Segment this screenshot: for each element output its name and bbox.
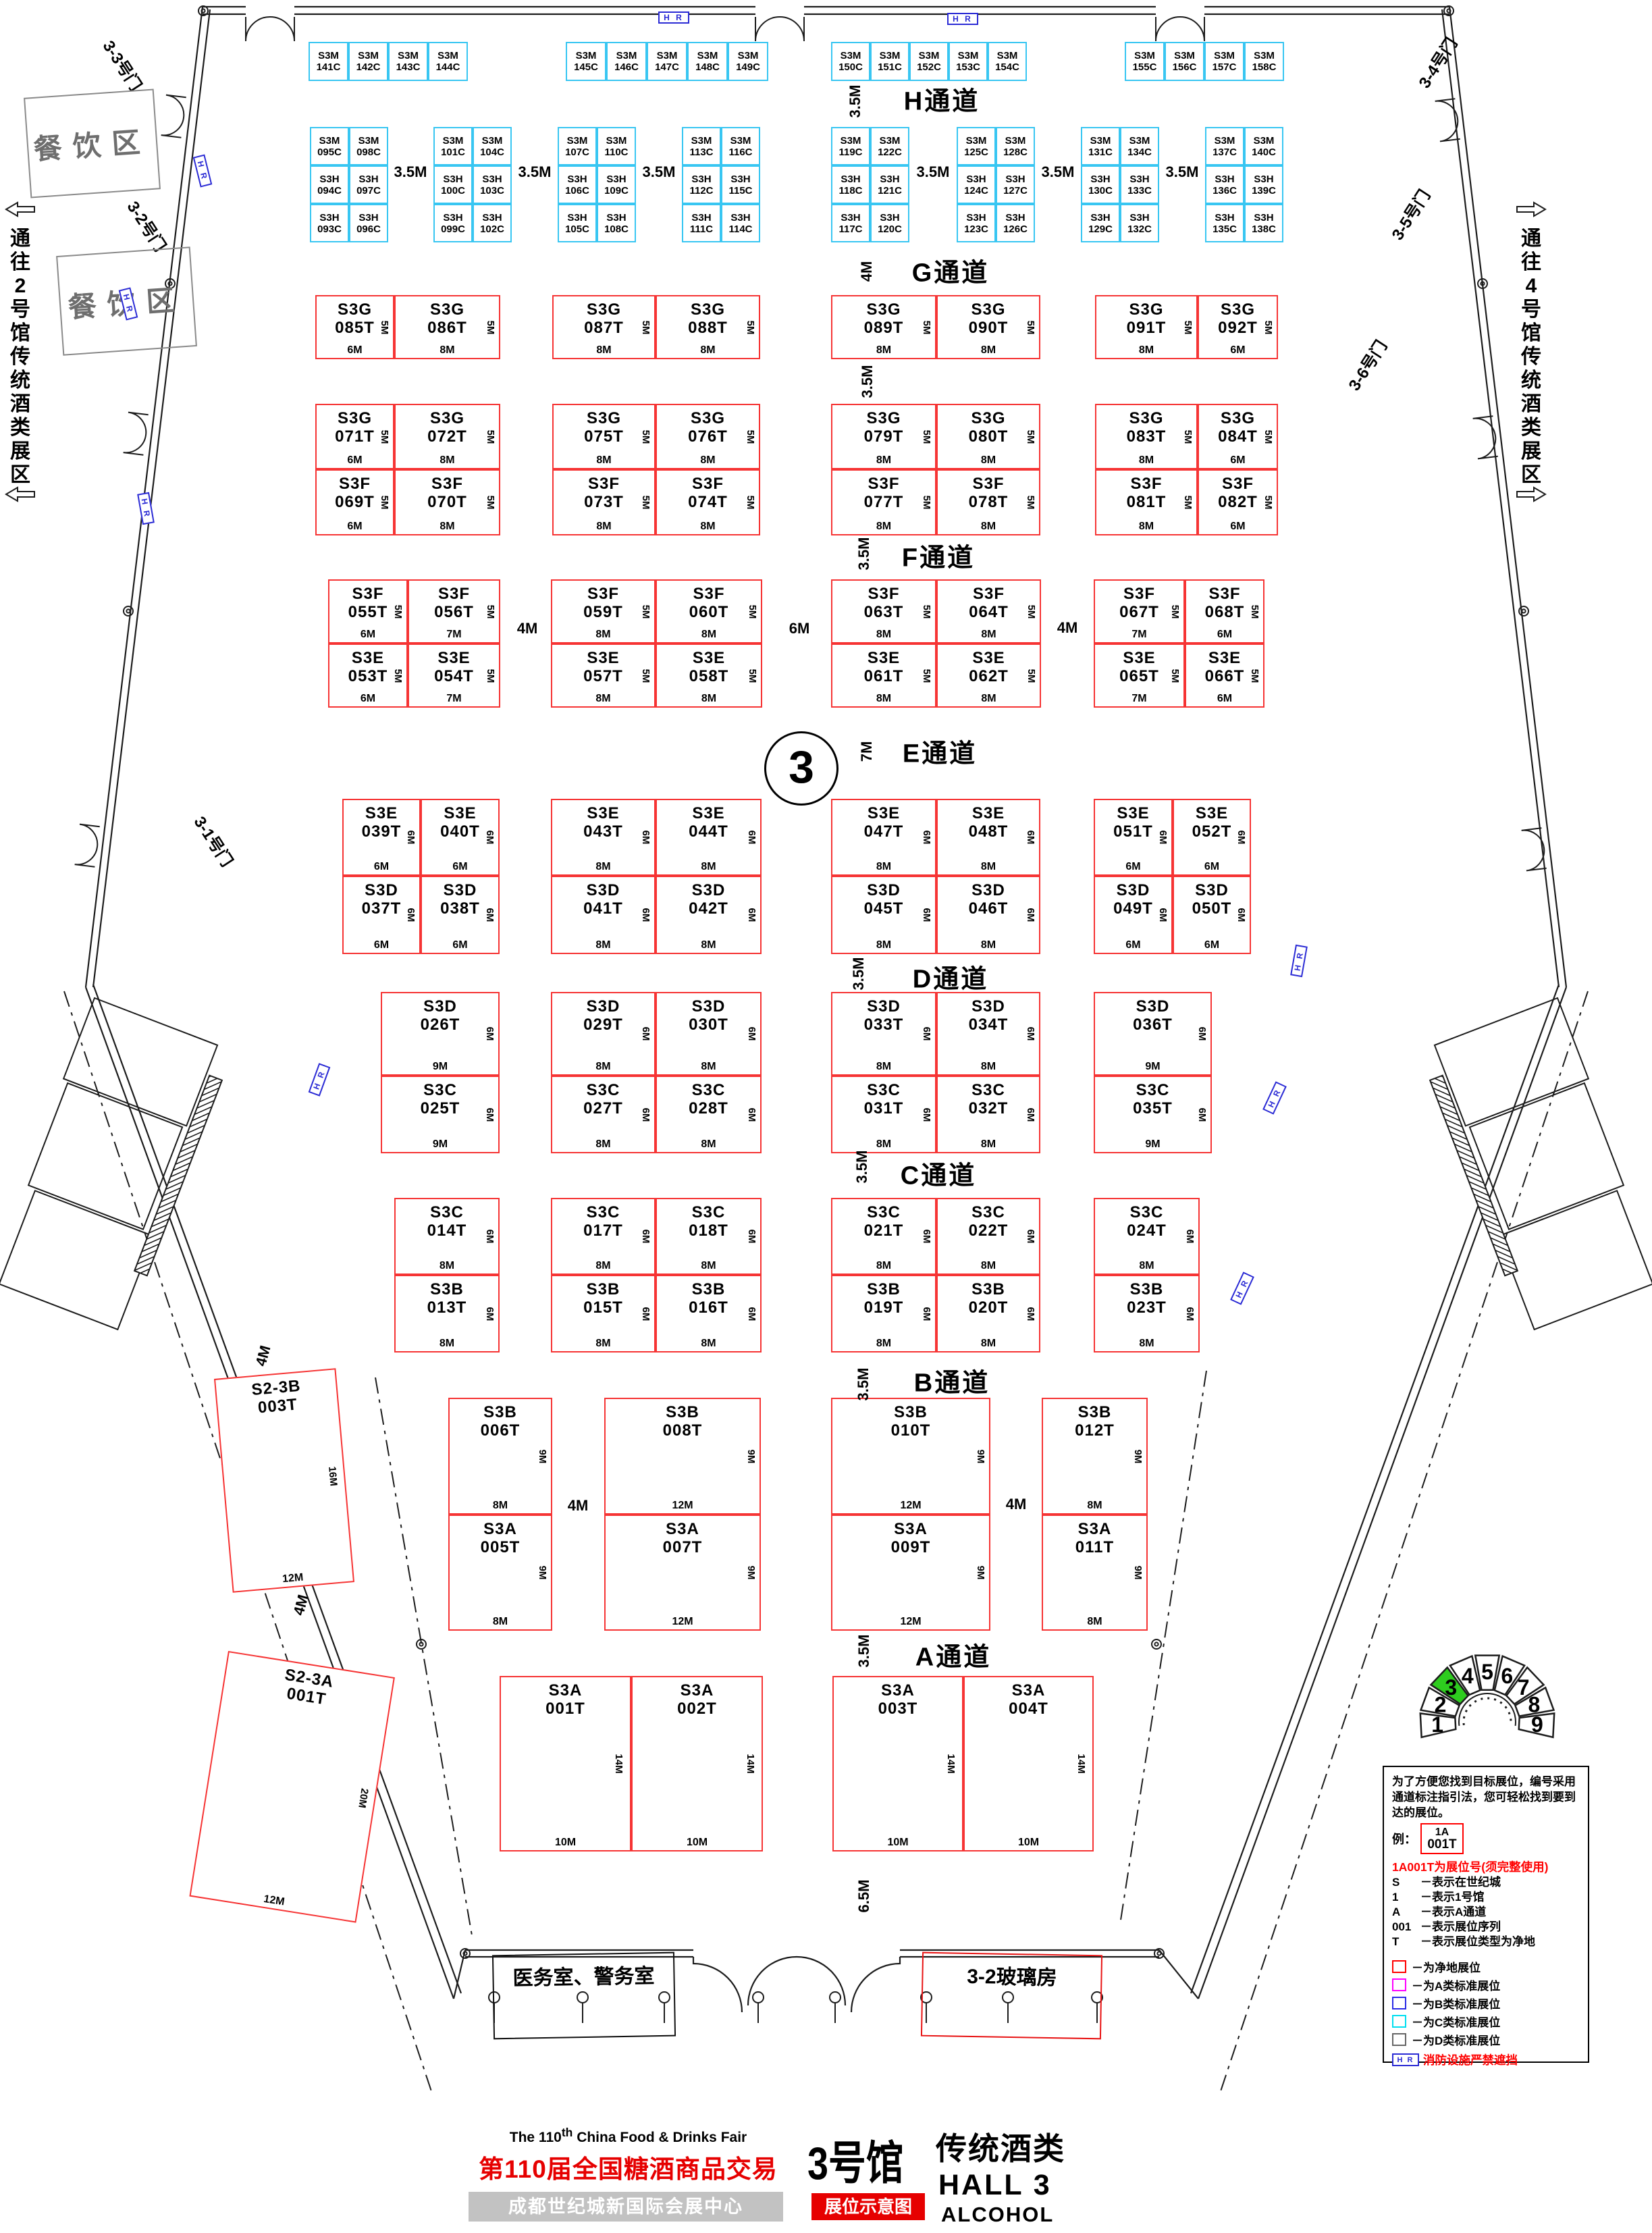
dimension-label: 4M	[568, 1497, 589, 1515]
booth-S3H-132C[interactable]: S3H132C	[1120, 204, 1159, 242]
booth-code: S3M131C	[1082, 135, 1119, 158]
booth-code: S3E043T	[552, 804, 654, 841]
booth-width-dim: 8M	[657, 939, 760, 951]
booth-depth-dim: 9M	[975, 1449, 986, 1463]
legend-def-row: 001－表示展位序列	[1392, 1920, 1580, 1935]
booth-code: S3M125C	[958, 135, 994, 158]
booth-S3F-059T[interactable]: S3F059T8M5M	[551, 579, 656, 643]
booth-depth-dim: 5M	[1249, 668, 1260, 683]
legend-example-line2: 001T	[1422, 1839, 1462, 1851]
booth-width-dim: 8M	[832, 861, 935, 873]
booth-S3M-131C[interactable]: S3M131C	[1081, 127, 1120, 165]
booth-S3C-028T[interactable]: S3C028T8M6M	[656, 1076, 762, 1153]
booth-S3M-158C[interactable]: S3M158C	[1244, 42, 1284, 81]
booth-width-dim: 6M	[1186, 693, 1263, 705]
footer-map-label: 展位示意图	[811, 2193, 925, 2220]
booth-code: S3M128C	[997, 135, 1034, 158]
booth-S3H-103C[interactable]: S3H103C	[473, 165, 512, 204]
booth-width-dim: 8M	[554, 454, 654, 467]
dimension-label: 3.5M	[855, 537, 873, 571]
booth-code: S3C018T	[657, 1203, 760, 1240]
booth-S3M-101C[interactable]: S3M101C	[433, 127, 473, 165]
booth-width-dim: 8M	[938, 1260, 1039, 1272]
booth-S3A-001T[interactable]: S3A001T10M14M	[500, 1676, 631, 1851]
booth-S3A-009T[interactable]: S3A009T12M9M	[831, 1515, 990, 1631]
booth-depth-dim: 5M	[1025, 496, 1036, 510]
legend-headline: 1A001T为展位号(须完整使用)	[1392, 1858, 1580, 1875]
booth-depth-dim: 5M	[640, 668, 651, 683]
booth-width-dim: 8M	[396, 454, 499, 467]
booth-S3F-073T[interactable]: S3F073T8M5M	[552, 469, 656, 535]
booth-S3F-068T[interactable]: S3F068T6M5M	[1185, 579, 1264, 643]
booth-S3A-011T[interactable]: S3A011T8M9M	[1042, 1515, 1148, 1631]
booth-S3E-062T[interactable]: S3E062T8M5M	[936, 643, 1041, 708]
booth-S3M-107C[interactable]: S3M107C	[558, 127, 597, 165]
legend-swatch-row: －为B类标准展位	[1392, 1994, 1580, 2012]
booth-depth-dim: 9M	[975, 1566, 986, 1580]
footer-hall-type: 传统酒类	[936, 2124, 1065, 2169]
booth-S3G-076T[interactable]: S3G076T8M5M	[656, 404, 760, 469]
booth-width-dim: 8M	[657, 693, 761, 705]
booth-code: S3H118C	[832, 174, 869, 196]
booth-S3D-038T[interactable]: S3D038T6M6M	[421, 876, 500, 954]
booth-S3G-092T[interactable]: S3G092T6M5M	[1198, 295, 1278, 359]
booth-S3G-072T[interactable]: S3G072T8M5M	[394, 404, 500, 469]
booth-S3G-090T[interactable]: S3G090T8M5M	[936, 295, 1040, 359]
booth-S3C-021T[interactable]: S3C021T8M6M	[831, 1198, 936, 1275]
booth-depth-dim: 5M	[485, 668, 496, 683]
booth-S3G-086T[interactable]: S3G086T8M5M	[394, 295, 500, 359]
booth-code: S3M147C	[648, 50, 686, 73]
booth-S3G-079T[interactable]: S3G079T8M5M	[831, 404, 936, 469]
booth-S3G-080T[interactable]: S3G080T8M5M	[936, 404, 1040, 469]
booth-S3D-030T[interactable]: S3D030T8M6M	[656, 992, 762, 1076]
booth-depth-dim: 5M	[745, 429, 756, 444]
booth-depth-dim: 5M	[1249, 604, 1260, 619]
booth-S3H-097C[interactable]: S3H097C	[349, 165, 388, 204]
booth-code: S3M157C	[1206, 50, 1243, 73]
booth-S3M-125C[interactable]: S3M125C	[957, 127, 996, 165]
booth-S3A-007T[interactable]: S3A007T12M9M	[604, 1515, 761, 1631]
booth-S3G-083T[interactable]: S3G083T8M5M	[1095, 404, 1198, 469]
booth-S3G-091T[interactable]: S3G091T8M5M	[1095, 295, 1198, 359]
booth-code: S3M152C	[911, 50, 947, 73]
booth-S3M-151C[interactable]: S3M151C	[870, 42, 909, 81]
booth-width-dim: 8M	[938, 521, 1039, 533]
booth-code: S2-3B003T	[216, 1373, 338, 1420]
dimension-label: 3.5M	[853, 1151, 871, 1184]
booth-code: S3B023T	[1095, 1280, 1198, 1317]
booth-S3A-004T[interactable]: S3A004T10M14M	[963, 1676, 1094, 1851]
booth-S3H-096C[interactable]: S3H096C	[349, 204, 388, 242]
booth-S3H-115C[interactable]: S3H115C	[721, 165, 760, 204]
booth-S3H-135C[interactable]: S3H135C	[1205, 204, 1244, 242]
booth-width-dim: 9M	[382, 1061, 498, 1073]
booth-S3F-060T[interactable]: S3F060T8M5M	[656, 579, 762, 643]
booth-S3E-066T[interactable]: S3E066T6M5M	[1185, 643, 1264, 708]
booth-code: S3C014T	[396, 1203, 498, 1240]
booth-code: S3H094C	[311, 174, 348, 196]
booth-S3D-045T[interactable]: S3D045T8M6M	[831, 876, 936, 954]
booth-S3G-075T[interactable]: S3G075T8M5M	[552, 404, 656, 469]
booth-S3F-064T[interactable]: S3F064T8M5M	[936, 579, 1041, 643]
dimension-label: 3.5M	[1166, 163, 1199, 181]
booth-S3E-051T[interactable]: S3E051T6M6M	[1094, 799, 1173, 876]
booth-S3H-126C[interactable]: S3H126C	[996, 204, 1035, 242]
booth-S3H-111C[interactable]: S3H111C	[682, 204, 721, 242]
booth-code: S3F064T	[938, 585, 1040, 621]
booth-S2-3B-003T[interactable]: S2-3B003T12M16M	[214, 1368, 354, 1593]
booth-depth-dim: 5M	[1025, 429, 1036, 444]
booth-S3C-018T[interactable]: S3C018T8M6M	[656, 1198, 762, 1275]
booth-S3D-050T[interactable]: S3D050T6M6M	[1173, 876, 1251, 954]
booth-S3E-061T[interactable]: S3E061T8M5M	[831, 643, 936, 708]
booth-depth-dim: 9M	[537, 1449, 548, 1463]
booth-width-dim: 8M	[832, 629, 935, 641]
booth-code: S3H115C	[722, 174, 759, 196]
booth-S3H-118C[interactable]: S3H118C	[831, 165, 870, 204]
booth-S3B-023T[interactable]: S3B023T8M6M	[1094, 1275, 1200, 1352]
booth-depth-dim: 6M	[1025, 1230, 1036, 1244]
booth-code: S3M141C	[310, 50, 347, 73]
booth-S3E-053T[interactable]: S3E053T6M5M	[328, 643, 408, 708]
booth-depth-dim: 5M	[640, 604, 651, 619]
booth-S3B-006T[interactable]: S3B006T8M9M	[448, 1398, 552, 1515]
hr-icon: H R	[1392, 2053, 1419, 2066]
booth-S3G-071T[interactable]: S3G071T6M5M	[315, 404, 394, 469]
booth-S3H-124C[interactable]: S3H124C	[957, 165, 996, 204]
booth-S3M-147C[interactable]: S3M147C	[647, 42, 687, 81]
booth-width-dim: 7M	[409, 693, 499, 705]
booth-S3D-042T[interactable]: S3D042T8M6M	[656, 876, 762, 954]
booth-code: S3H108C	[598, 212, 635, 235]
booth-code: S3H135C	[1206, 212, 1243, 235]
booth-width-dim: 8M	[552, 1260, 654, 1272]
booth-depth-dim: 5M	[1025, 320, 1036, 334]
booth-S3H-108C[interactable]: S3H108C	[597, 204, 636, 242]
booth-code: S3A002T	[633, 1681, 762, 1718]
booth-depth-dim: 5M	[392, 604, 404, 619]
booth-S3M-137C[interactable]: S3M137C	[1205, 127, 1244, 165]
booth-S3E-054T[interactable]: S3E054T7M5M	[408, 643, 500, 708]
booth-S3M-122C[interactable]: S3M122C	[870, 127, 909, 165]
booth-depth-dim: 5M	[379, 320, 390, 334]
booth-S3E-052T[interactable]: S3E052T6M6M	[1173, 799, 1251, 876]
booth-S3F-081T[interactable]: S3F081T8M5M	[1095, 469, 1198, 535]
booth-S3B-008T[interactable]: S3B008T12M9M	[604, 1398, 761, 1515]
booth-width-dim: 8M	[552, 1338, 654, 1350]
booth-code: S3H114C	[722, 212, 759, 235]
legend-swatch-row: －为C类标准展位	[1392, 2012, 1580, 2030]
booth-S3M-119C[interactable]: S3M119C	[831, 127, 870, 165]
booth-code: S3G079T	[832, 409, 935, 446]
booth-S3F-078T[interactable]: S3F078T8M5M	[936, 469, 1040, 535]
booth-S3C-017T[interactable]: S3C017T8M6M	[551, 1198, 656, 1275]
booth-S3C-022T[interactable]: S3C022T8M6M	[936, 1198, 1040, 1275]
booth-S3H-121C[interactable]: S3H121C	[870, 165, 909, 204]
booth-depth-dim: 6M	[921, 1230, 932, 1244]
booth-depth-dim: 6M	[1025, 1107, 1036, 1122]
booth-depth-dim: 6M	[921, 831, 932, 845]
booth-S3E-057T[interactable]: S3E057T8M5M	[551, 643, 656, 708]
booth-depth-dim: 5M	[1182, 320, 1194, 334]
booth-S3B-015T[interactable]: S3B015T8M6M	[551, 1275, 656, 1352]
booth-width-dim: 7M	[1095, 629, 1183, 641]
booth-depth-dim: 5M	[1025, 668, 1037, 683]
booth-S3H-138C[interactable]: S3H138C	[1244, 204, 1283, 242]
booth-S3F-082T[interactable]: S3F082T6M5M	[1198, 469, 1278, 535]
booth-S3M-145C[interactable]: S3M145C	[566, 42, 606, 81]
booth-S3M-148C[interactable]: S3M148C	[687, 42, 728, 81]
booth-width-dim: 7M	[1095, 693, 1183, 705]
booth-S3C-035T[interactable]: S3C035T9M6M	[1094, 1076, 1212, 1153]
aisle-label-B: B通道	[914, 1362, 990, 1399]
booth-code: S3M095C	[311, 135, 348, 158]
booth-S3M-110C[interactable]: S3M110C	[597, 127, 636, 165]
booth-S3M-113C[interactable]: S3M113C	[682, 127, 721, 165]
booth-depth-dim: 14M	[613, 1754, 624, 1773]
booth-width-dim: 8M	[396, 344, 499, 357]
booth-S3M-116C[interactable]: S3M116C	[721, 127, 760, 165]
booth-S3M-141C[interactable]: S3M141C	[309, 42, 348, 81]
booth-S3G-084T[interactable]: S3G084T6M5M	[1198, 404, 1278, 469]
booth-code: S3H124C	[958, 174, 994, 196]
booth-code: S3M110C	[598, 135, 635, 158]
booth-S3E-048T[interactable]: S3E048T8M6M	[936, 799, 1040, 876]
booth-S3F-067T[interactable]: S3F067T7M5M	[1094, 579, 1185, 643]
booth-S3C-024T[interactable]: S3C024T8M6M	[1094, 1198, 1200, 1275]
booth-S3H-136C[interactable]: S3H136C	[1205, 165, 1244, 204]
booth-width-dim: 10M	[965, 1837, 1092, 1849]
booth-S3D-041T[interactable]: S3D041T8M6M	[551, 876, 656, 954]
booth-depth-dim: 6M	[405, 831, 417, 845]
booth-S3M-140C[interactable]: S3M140C	[1244, 127, 1283, 165]
booth-S3H-114C[interactable]: S3H114C	[721, 204, 760, 242]
aisle-label-E: E通道	[903, 733, 977, 770]
booth-S3H-139C[interactable]: S3H139C	[1244, 165, 1283, 204]
booth-S3M-152C[interactable]: S3M152C	[909, 42, 949, 81]
booth-code: S3B013T	[396, 1280, 498, 1317]
booth-depth-dim: 5M	[1182, 496, 1194, 510]
booth-S3A-003T[interactable]: S3A003T10M14M	[832, 1676, 963, 1851]
booth-S3M-128C[interactable]: S3M128C	[996, 127, 1035, 165]
booth-S3H-129C[interactable]: S3H129C	[1081, 204, 1120, 242]
booth-S3M-157C[interactable]: S3M157C	[1204, 42, 1244, 81]
booth-depth-dim: 6M	[1025, 908, 1036, 922]
booth-width-dim: 8M	[396, 1260, 498, 1272]
booth-S3H-130C[interactable]: S3H130C	[1081, 165, 1120, 204]
booth-S3G-089T[interactable]: S3G089T8M5M	[831, 295, 936, 359]
booth-S3C-031T[interactable]: S3C031T8M6M	[831, 1076, 936, 1153]
booth-S3E-044T[interactable]: S3E044T8M6M	[656, 799, 762, 876]
booth-S3B-013T[interactable]: S3B013T8M6M	[394, 1275, 500, 1352]
booth-S3D-026T[interactable]: S3D026T9M6M	[381, 992, 500, 1076]
booth-S3G-087T[interactable]: S3G087T8M5M	[552, 295, 656, 359]
booth-S3D-036T[interactable]: S3D036T9M6M	[1094, 992, 1212, 1076]
booth-code: S3M104C	[474, 135, 510, 158]
booth-S3F-063T[interactable]: S3F063T8M5M	[831, 579, 936, 643]
booth-S3G-088T[interactable]: S3G088T8M5M	[656, 295, 760, 359]
booth-code: S3G088T	[657, 300, 759, 337]
booth-width-dim: 12M	[832, 1500, 989, 1512]
booth-code: S3E044T	[657, 804, 760, 841]
booth-S3H-133C[interactable]: S3H133C	[1120, 165, 1159, 204]
booth-code: S3M143C	[390, 50, 427, 73]
booth-S3M-144C[interactable]: S3M144C	[428, 42, 468, 81]
booth-depth-dim: 6M	[746, 1230, 757, 1244]
booth-S3H-127C[interactable]: S3H127C	[996, 165, 1035, 204]
booth-depth-dim: 6M	[746, 1107, 757, 1122]
legend-swatch-row: －为A类标准展位	[1392, 1976, 1580, 1994]
booth-S3D-034T[interactable]: S3D034T8M6M	[936, 992, 1040, 1076]
booth-width-dim: 8M	[1043, 1500, 1146, 1512]
booth-S3M-134C[interactable]: S3M134C	[1120, 127, 1159, 165]
booth-S3D-033T[interactable]: S3D033T8M6M	[831, 992, 936, 1076]
booth-S3M-142C[interactable]: S3M142C	[348, 42, 388, 81]
dimension-label: 3.5M	[847, 85, 864, 118]
booth-S3H-094C[interactable]: S3H094C	[310, 165, 349, 204]
booth-width-dim: 8M	[1095, 1260, 1198, 1272]
booth-S3D-029T[interactable]: S3D029T8M6M	[551, 992, 656, 1076]
booth-S3B-012T[interactable]: S3B012T8M9M	[1042, 1398, 1148, 1515]
booth-S3D-049T[interactable]: S3D049T6M6M	[1094, 876, 1173, 954]
booth-width-dim: 8M	[552, 693, 654, 705]
booth-S3H-109C[interactable]: S3H109C	[597, 165, 636, 204]
booth-depth-dim: 6M	[484, 908, 496, 922]
booth-S3H-102C[interactable]: S3H102C	[473, 204, 512, 242]
booth-S3H-123C[interactable]: S3H123C	[957, 204, 996, 242]
booth-S3E-040T[interactable]: S3E040T6M6M	[421, 799, 500, 876]
booth-depth-dim: 5M	[640, 496, 651, 510]
booth-code: S3H111C	[683, 212, 720, 235]
hall-number-badge: 3	[764, 731, 838, 806]
booth-depth-dim: 6M	[405, 908, 417, 922]
booth-width-dim: 6M	[317, 344, 393, 357]
booth-S3M-153C[interactable]: S3M153C	[949, 42, 988, 81]
booth-depth-dim: 6M	[640, 1027, 651, 1041]
booth-S3B-016T[interactable]: S3B016T8M6M	[656, 1275, 762, 1352]
booth-depth-dim: 5M	[379, 429, 390, 444]
booth-S3H-093C[interactable]: S3H093C	[310, 204, 349, 242]
booth-S3F-056T[interactable]: S3F056T7M5M	[408, 579, 500, 643]
booth-code: S3E048T	[938, 804, 1039, 841]
booth-S3M-098C[interactable]: S3M098C	[349, 127, 388, 165]
booth-depth-dim: 5M	[392, 668, 404, 683]
booth-width-dim: 8M	[552, 1061, 654, 1073]
swatch-icon	[1392, 2015, 1406, 2028]
booth-S3H-112C[interactable]: S3H112C	[682, 165, 721, 204]
booth-S3M-143C[interactable]: S3M143C	[388, 42, 428, 81]
booth-code: S3F078T	[938, 475, 1039, 511]
legend-fire-warning: 消防设施严禁遮挡	[1423, 2051, 1518, 2068]
booth-width-dim: 8M	[1043, 1616, 1146, 1628]
footer-hall-en: HALL 3	[938, 2169, 1052, 2202]
aisle-label-H: H通道	[904, 80, 980, 117]
booth-depth-dim: 9M	[537, 1566, 548, 1580]
booth-S3E-047T[interactable]: S3E047T8M6M	[831, 799, 936, 876]
booth-S3F-077T[interactable]: S3F077T8M5M	[831, 469, 936, 535]
booth-S3M-154C[interactable]: S3M154C	[988, 42, 1027, 81]
booth-depth-dim: 6M	[1025, 1027, 1036, 1041]
booth-S3M-104C[interactable]: S3M104C	[473, 127, 512, 165]
booth-S3F-070T[interactable]: S3F070T8M5M	[394, 469, 500, 535]
booth-depth-dim: 9M	[745, 1566, 757, 1580]
booth-S3C-025T[interactable]: S3C025T9M6M	[381, 1076, 500, 1153]
booth-depth-dim: 5M	[747, 604, 758, 619]
booth-width-dim: 8M	[832, 1061, 935, 1073]
booth-S3F-055T[interactable]: S3F055T6M5M	[328, 579, 408, 643]
booth-code: S3C028T	[657, 1081, 760, 1118]
booth-S3D-037T[interactable]: S3D037T6M6M	[342, 876, 421, 954]
booth-width-dim: 8M	[832, 939, 935, 951]
booth-S3M-095C[interactable]: S3M095C	[310, 127, 349, 165]
dimension-label: 3.5M	[394, 163, 427, 181]
booth-S3E-065T[interactable]: S3E065T7M5M	[1094, 643, 1185, 708]
dimension-label: 3.5M	[1042, 163, 1075, 181]
booth-code: S3F063T	[832, 585, 935, 621]
dimension-label: 4M	[517, 620, 538, 637]
booth-depth-dim: 5M	[921, 496, 932, 510]
booth-S3E-043T[interactable]: S3E043T8M6M	[551, 799, 656, 876]
booth-S3B-010T[interactable]: S3B010T12M9M	[831, 1398, 990, 1515]
booth-S3E-058T[interactable]: S3E058T8M5M	[656, 643, 762, 708]
booth-S3M-156C[interactable]: S3M156C	[1165, 42, 1204, 81]
booth-S3M-155C[interactable]: S3M155C	[1125, 42, 1165, 81]
booth-S3C-014T[interactable]: S3C014T8M6M	[394, 1198, 500, 1275]
booth-depth-dim: 6M	[921, 1027, 932, 1041]
booth-S3A-002T[interactable]: S3A002T10M14M	[631, 1676, 763, 1851]
booth-code: S3E058T	[657, 649, 761, 685]
booth-S3F-074T[interactable]: S3F074T8M5M	[656, 469, 760, 535]
booth-S3D-046T[interactable]: S3D046T8M6M	[936, 876, 1040, 954]
booth-S3H-105C[interactable]: S3H105C	[558, 204, 597, 242]
booth-depth-dim: 5M	[485, 604, 496, 619]
booth-S3H-117C[interactable]: S3H117C	[831, 204, 870, 242]
booth-S3F-069T[interactable]: S3F069T6M5M	[315, 469, 394, 535]
booth-code: S3C025T	[382, 1081, 498, 1118]
booth-S3H-099C[interactable]: S3H099C	[433, 204, 473, 242]
booth-code: S3E061T	[832, 649, 935, 685]
booth-code: S3H139C	[1246, 174, 1282, 196]
booth-S3A-005T[interactable]: S3A005T8M9M	[448, 1515, 552, 1631]
booth-depth-dim: 6M	[1235, 908, 1247, 922]
booth-width-dim: 8M	[938, 861, 1039, 873]
booth-code: S3H112C	[683, 174, 720, 196]
booth-code: S3M149C	[729, 50, 767, 73]
booth-S3H-106C[interactable]: S3H106C	[558, 165, 597, 204]
booth-S3C-027T[interactable]: S3C027T8M6M	[551, 1076, 656, 1153]
booth-code: S3M098C	[350, 135, 387, 158]
booth-S3C-032T[interactable]: S3C032T8M6M	[936, 1076, 1040, 1153]
booth-S3M-146C[interactable]: S3M146C	[606, 42, 647, 81]
booth-S3H-100C[interactable]: S3H100C	[433, 165, 473, 204]
dimension-label: 6M	[789, 620, 810, 637]
booth-S3H-120C[interactable]: S3H120C	[870, 204, 909, 242]
booth-S3M-150C[interactable]: S3M150C	[831, 42, 870, 81]
booth-S3B-019T[interactable]: S3B019T8M6M	[831, 1275, 936, 1352]
svg-text:3: 3	[1445, 1675, 1457, 1700]
booth-S3M-149C[interactable]: S3M149C	[728, 42, 768, 81]
swatch-icon	[1392, 1978, 1406, 1991]
floorplan-hall3: 123456789 S3G085T6M5MS3G086T8M5MS3G087T8…	[0, 0, 1652, 2233]
booth-S3B-020T[interactable]: S3B020T8M6M	[936, 1275, 1040, 1352]
booth-S3E-039T[interactable]: S3E039T6M6M	[342, 799, 421, 876]
booth-code: S3M146C	[608, 50, 645, 73]
booth-code: S3C027T	[552, 1081, 654, 1118]
booth-width-dim: 6M	[344, 861, 419, 873]
booth-code: S3D042T	[657, 881, 760, 918]
booth-S3G-085T[interactable]: S3G085T6M5M	[315, 295, 394, 359]
